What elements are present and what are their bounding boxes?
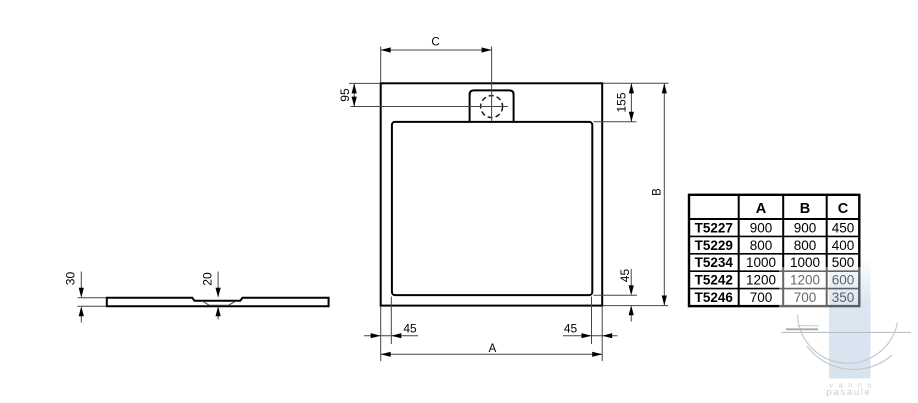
svg-text:C: C — [431, 36, 439, 48]
svg-text:400: 400 — [832, 238, 855, 253]
svg-text:45: 45 — [403, 322, 417, 336]
svg-text:95: 95 — [338, 88, 352, 102]
svg-text:T5246: T5246 — [695, 290, 734, 305]
svg-text:155: 155 — [615, 92, 629, 112]
svg-text:B: B — [652, 188, 664, 196]
svg-text:30: 30 — [64, 272, 78, 286]
svg-text:800: 800 — [750, 238, 773, 253]
svg-text:450: 450 — [832, 220, 855, 235]
svg-text:T5229: T5229 — [695, 238, 733, 253]
svg-text:pasaule: pasaule — [827, 387, 872, 398]
svg-text:1000: 1000 — [746, 255, 776, 270]
svg-text:45: 45 — [618, 269, 632, 283]
svg-text:A: A — [756, 201, 767, 217]
svg-text:B: B — [800, 201, 810, 217]
svg-text:800: 800 — [794, 238, 817, 253]
svg-text:1200: 1200 — [746, 273, 776, 288]
svg-text:700: 700 — [750, 290, 773, 305]
svg-text:T5242: T5242 — [695, 273, 733, 288]
svg-text:900: 900 — [794, 220, 817, 235]
svg-text:T5227: T5227 — [695, 220, 733, 235]
svg-text:900: 900 — [750, 220, 773, 235]
svg-text:20: 20 — [201, 272, 215, 286]
svg-text:A: A — [489, 343, 497, 355]
svg-text:45: 45 — [564, 322, 578, 336]
svg-text:T5234: T5234 — [695, 255, 734, 270]
svg-text:C: C — [838, 201, 849, 217]
